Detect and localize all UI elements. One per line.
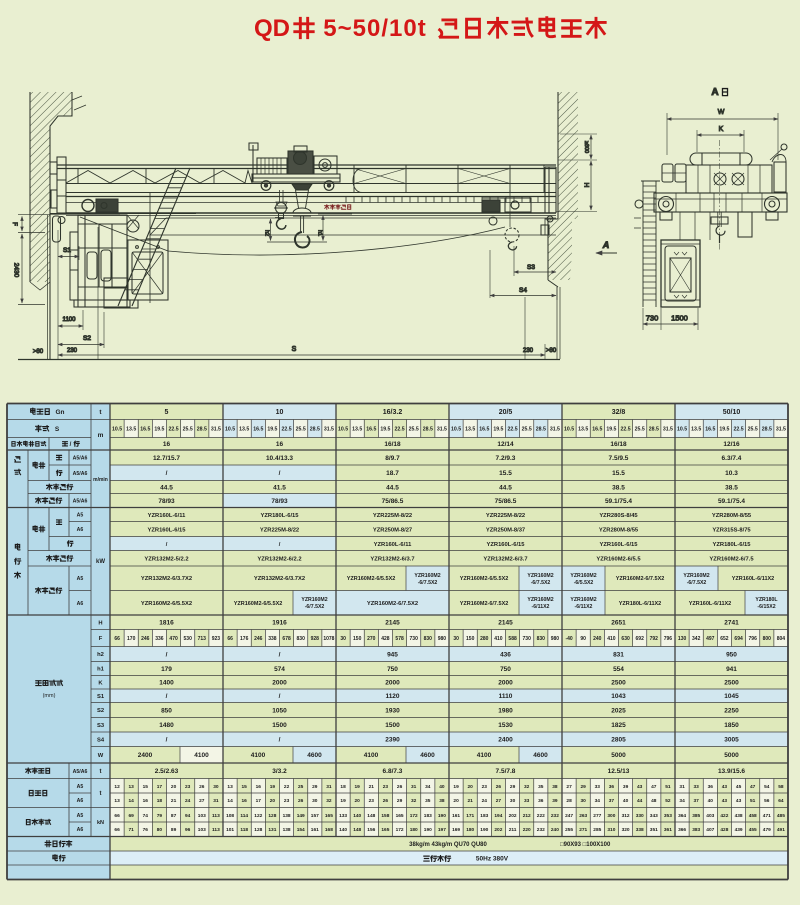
- svg-text:26: 26: [397, 784, 403, 790]
- svg-text:YZR160M2-6/5.5: YZR160M2-6/5.5: [596, 557, 641, 563]
- svg-text:25.5: 25.5: [522, 427, 532, 433]
- svg-text:37: 37: [694, 798, 700, 804]
- svg-text:730: 730: [410, 636, 419, 642]
- svg-text:32: 32: [326, 798, 332, 804]
- svg-text:138: 138: [283, 813, 291, 819]
- svg-text:W: W: [718, 109, 725, 116]
- svg-text:45: 45: [736, 784, 742, 790]
- svg-text:15: 15: [143, 784, 149, 790]
- svg-text:271: 271: [579, 827, 587, 833]
- svg-text:YZR160M2: YZR160M2: [414, 573, 440, 579]
- svg-text:255: 255: [565, 827, 573, 833]
- svg-text:361: 361: [664, 827, 672, 833]
- svg-text:4600: 4600: [533, 752, 548, 759]
- svg-text:336: 336: [155, 636, 164, 642]
- svg-text:410: 410: [607, 636, 616, 642]
- svg-text:28.5: 28.5: [423, 427, 433, 433]
- svg-text:19: 19: [453, 784, 459, 790]
- svg-text:YZR160L-6/11: YZR160L-6/11: [374, 542, 412, 548]
- svg-text:1480: 1480: [159, 722, 174, 729]
- svg-text:103: 103: [198, 827, 206, 833]
- svg-text:23: 23: [284, 798, 290, 804]
- svg-text:h2: h2: [264, 230, 270, 236]
- svg-text:52: 52: [665, 798, 671, 804]
- svg-text:22.5: 22.5: [508, 427, 518, 433]
- svg-text:80: 80: [157, 827, 163, 833]
- svg-text:43: 43: [722, 784, 728, 790]
- svg-text:197: 197: [438, 827, 446, 833]
- svg-text:140: 140: [353, 813, 361, 819]
- svg-text:945: 945: [387, 651, 398, 658]
- svg-text:31: 31: [411, 784, 417, 790]
- svg-text:24: 24: [185, 798, 191, 804]
- svg-text:28.5: 28.5: [536, 427, 546, 433]
- svg-text:YZR160M2: YZR160M2: [570, 573, 596, 579]
- svg-text:246: 246: [141, 636, 150, 642]
- svg-text:4100: 4100: [251, 752, 266, 759]
- svg-text:1400: 1400: [159, 680, 174, 687]
- svg-text:t: t: [100, 791, 102, 797]
- svg-text:342: 342: [692, 636, 701, 642]
- svg-text:W: W: [98, 753, 104, 759]
- svg-text:578: 578: [395, 636, 404, 642]
- svg-text:796: 796: [664, 636, 673, 642]
- svg-text:S4: S4: [97, 738, 105, 744]
- svg-text:364: 364: [678, 813, 686, 819]
- svg-text:850: 850: [161, 707, 172, 714]
- svg-text:750: 750: [387, 666, 398, 673]
- svg-text:10.3: 10.3: [725, 470, 738, 477]
- svg-text:YZR160L-6/11X2: YZR160L-6/11X2: [689, 601, 732, 607]
- svg-text:1916: 1916: [272, 620, 287, 627]
- svg-text:30: 30: [213, 784, 219, 790]
- svg-text:750: 750: [500, 666, 511, 673]
- svg-text:78/93: 78/93: [271, 498, 288, 505]
- svg-text:A5: A5: [77, 813, 84, 819]
- svg-text:30: 30: [581, 798, 587, 804]
- svg-text:/: /: [279, 651, 281, 658]
- svg-text:2500: 2500: [724, 680, 739, 687]
- svg-text:19.5: 19.5: [154, 427, 164, 433]
- svg-text:16.5: 16.5: [253, 427, 263, 433]
- svg-text:A: A: [711, 87, 718, 98]
- svg-text:A5/A6: A5/A6: [73, 499, 88, 505]
- svg-text:YZR160M2: YZR160M2: [570, 597, 596, 603]
- svg-text:S4: S4: [519, 287, 527, 294]
- svg-text:800: 800: [763, 636, 772, 642]
- svg-text:34: 34: [679, 798, 685, 804]
- svg-text:YZR280S-8/45: YZR280S-8/45: [599, 513, 638, 519]
- svg-text:YZR180L-6/15: YZR180L-6/15: [712, 542, 751, 548]
- svg-text:25.5: 25.5: [635, 427, 645, 433]
- svg-text:148: 148: [367, 813, 375, 819]
- svg-text:161: 161: [311, 827, 319, 833]
- svg-text:15: 15: [242, 784, 248, 790]
- svg-text:A5: A5: [77, 784, 84, 790]
- svg-text:18: 18: [340, 784, 346, 790]
- svg-text:YZR160L-6/15: YZR160L-6/15: [147, 527, 186, 533]
- svg-text:27: 27: [566, 784, 572, 790]
- svg-text:27: 27: [199, 798, 205, 804]
- svg-text:6.8/7.3: 6.8/7.3: [383, 768, 403, 775]
- svg-text:16: 16: [276, 441, 284, 448]
- svg-text:277: 277: [593, 813, 601, 819]
- svg-text:S1: S1: [97, 694, 105, 700]
- svg-text:2400: 2400: [498, 737, 513, 744]
- svg-text:2400: 2400: [138, 752, 153, 759]
- svg-text:230: 230: [523, 348, 534, 354]
- svg-text:(mm): (mm): [43, 693, 56, 699]
- svg-text:1500: 1500: [671, 314, 688, 323]
- svg-text:343: 343: [650, 813, 658, 819]
- svg-text:574: 574: [274, 666, 285, 673]
- svg-text:310: 310: [607, 827, 615, 833]
- svg-text:403: 403: [706, 813, 714, 819]
- svg-text:103: 103: [198, 813, 206, 819]
- svg-text:79: 79: [157, 813, 163, 819]
- svg-text:428: 428: [720, 827, 728, 833]
- svg-text:13.9/15.6: 13.9/15.6: [718, 768, 745, 775]
- svg-text:179: 179: [161, 666, 172, 673]
- svg-text:169: 169: [452, 827, 460, 833]
- svg-text:439: 439: [735, 827, 743, 833]
- svg-text:29: 29: [510, 784, 516, 790]
- svg-text:A6: A6: [77, 527, 84, 533]
- svg-text:≥300: ≥300: [583, 141, 589, 153]
- svg-text:-6/7.5X2: -6/7.5X2: [531, 580, 551, 586]
- svg-text:71: 71: [129, 827, 135, 833]
- svg-text:18: 18: [157, 798, 163, 804]
- svg-text:31.5: 31.5: [663, 427, 673, 433]
- svg-text:455: 455: [749, 827, 757, 833]
- svg-text:96: 96: [185, 827, 191, 833]
- svg-text:830: 830: [424, 636, 433, 642]
- svg-text:10.5: 10.5: [112, 427, 122, 433]
- svg-text:43: 43: [637, 784, 643, 790]
- svg-text:941: 941: [726, 666, 737, 673]
- svg-text:149: 149: [297, 813, 305, 819]
- svg-text:4100: 4100: [364, 752, 379, 759]
- svg-text:2651: 2651: [611, 620, 626, 627]
- svg-text:165: 165: [396, 813, 404, 819]
- svg-text:Gn: Gn: [55, 409, 64, 416]
- svg-text:170: 170: [127, 636, 136, 642]
- svg-text:14: 14: [129, 798, 135, 804]
- svg-text:50/10: 50/10: [723, 409, 741, 416]
- svg-text:36: 36: [708, 784, 714, 790]
- svg-text:438: 438: [735, 813, 743, 819]
- svg-text:YZR180L-6/11X2: YZR180L-6/11X2: [619, 601, 662, 607]
- svg-text:10.5: 10.5: [677, 427, 687, 433]
- svg-text:31.5: 31.5: [776, 427, 786, 433]
- svg-text:□90X93 □100X100: □90X93 □100X100: [560, 842, 611, 848]
- svg-text:31: 31: [679, 784, 685, 790]
- svg-text:YZR132M2-6/3.7X2: YZR132M2-6/3.7X2: [254, 576, 305, 582]
- svg-text:40: 40: [623, 798, 629, 804]
- svg-text:31.5: 31.5: [211, 427, 221, 433]
- svg-text:44.5: 44.5: [386, 484, 399, 491]
- svg-text:118: 118: [240, 827, 248, 833]
- svg-text:S3: S3: [527, 264, 535, 271]
- svg-text:2805: 2805: [611, 737, 626, 744]
- svg-text:16/18: 16/18: [610, 441, 627, 448]
- svg-text:353: 353: [664, 813, 672, 819]
- svg-text:75/86.5: 75/86.5: [382, 498, 404, 505]
- svg-text:59.1/75.4: 59.1/75.4: [718, 498, 745, 505]
- svg-text:kW: kW: [96, 559, 105, 565]
- svg-text:2000: 2000: [498, 680, 513, 687]
- svg-text:436: 436: [500, 651, 511, 658]
- svg-text:20: 20: [355, 798, 361, 804]
- svg-text:12/14: 12/14: [497, 441, 514, 448]
- svg-text:94: 94: [185, 813, 191, 819]
- svg-text:-6/7.5X2: -6/7.5X2: [418, 580, 438, 586]
- svg-text:694: 694: [734, 636, 743, 642]
- svg-text:/: /: [279, 470, 281, 477]
- svg-text:A6: A6: [77, 798, 84, 804]
- svg-text:29: 29: [581, 784, 587, 790]
- svg-text:713: 713: [198, 636, 207, 642]
- svg-text:28: 28: [566, 798, 572, 804]
- svg-text:13.5: 13.5: [352, 427, 362, 433]
- svg-text:59.1/75.4: 59.1/75.4: [605, 498, 632, 505]
- svg-text:27: 27: [496, 798, 502, 804]
- svg-text:270: 270: [367, 636, 376, 642]
- svg-text:YZR160M2: YZR160M2: [301, 597, 327, 603]
- svg-text:24: 24: [482, 798, 488, 804]
- svg-text:YZR160M2-6/7.5X2: YZR160M2-6/7.5X2: [367, 601, 418, 607]
- svg-text:39: 39: [623, 784, 629, 790]
- svg-text:168: 168: [325, 827, 333, 833]
- svg-text:h1: h1: [97, 667, 105, 673]
- svg-text:13.5: 13.5: [465, 427, 475, 433]
- svg-text:21: 21: [369, 784, 375, 790]
- svg-text:18.7: 18.7: [386, 470, 399, 477]
- svg-text:58: 58: [778, 784, 784, 790]
- svg-text:32: 32: [411, 798, 417, 804]
- svg-text:980: 980: [438, 636, 447, 642]
- svg-text:21: 21: [468, 798, 474, 804]
- svg-text:4600: 4600: [420, 752, 435, 759]
- svg-text:16/18: 16/18: [384, 441, 401, 448]
- svg-text:30: 30: [340, 636, 346, 642]
- svg-text:796: 796: [749, 636, 758, 642]
- svg-text:A: A: [602, 240, 610, 250]
- svg-text:285: 285: [593, 827, 601, 833]
- svg-text:471: 471: [763, 813, 771, 819]
- svg-text:22.5: 22.5: [169, 427, 179, 433]
- svg-text:A5/A6: A5/A6: [73, 769, 88, 775]
- svg-text:240: 240: [593, 636, 602, 642]
- svg-text:YZR160L-6/15: YZR160L-6/15: [599, 542, 638, 548]
- svg-text:/: /: [166, 737, 168, 744]
- svg-text:10.4/13.3: 10.4/13.3: [266, 455, 293, 462]
- svg-text:31.5: 31.5: [324, 427, 334, 433]
- svg-text:7.5/7.8: 7.5/7.8: [496, 768, 516, 775]
- svg-text:/: /: [279, 737, 281, 744]
- svg-text:-6/7.5X2: -6/7.5X2: [305, 604, 325, 610]
- svg-text:7.2/9.3: 7.2/9.3: [496, 455, 516, 462]
- svg-text:458: 458: [749, 813, 757, 819]
- svg-text:kN: kN: [97, 820, 104, 826]
- svg-text:407: 407: [706, 827, 714, 833]
- svg-text:1043: 1043: [611, 693, 626, 700]
- svg-text:29: 29: [312, 784, 318, 790]
- svg-text:23: 23: [482, 784, 488, 790]
- svg-text:YZR160M2-6/7.5: YZR160M2-6/7.5: [709, 557, 754, 563]
- svg-text:12/16: 12/16: [723, 441, 740, 448]
- svg-text:13: 13: [227, 784, 233, 790]
- svg-text:44.5: 44.5: [160, 484, 173, 491]
- svg-text:240: 240: [551, 827, 559, 833]
- svg-text:320: 320: [622, 827, 630, 833]
- svg-text:30: 30: [312, 798, 318, 804]
- svg-text:YZR132M2-6/2.2: YZR132M2-6/2.2: [257, 557, 301, 563]
- svg-text:16.5: 16.5: [140, 427, 150, 433]
- svg-text:165: 165: [381, 827, 389, 833]
- svg-text:16.5: 16.5: [366, 427, 376, 433]
- svg-text:-6/15X2: -6/15X2: [757, 604, 775, 610]
- svg-text:330: 330: [636, 813, 644, 819]
- svg-text:190: 190: [480, 827, 488, 833]
- svg-text:410: 410: [494, 636, 503, 642]
- svg-text:30: 30: [453, 636, 459, 642]
- svg-text:S: S: [292, 346, 297, 353]
- svg-text:38.5: 38.5: [612, 484, 625, 491]
- svg-text:8/9.7: 8/9.7: [385, 455, 400, 462]
- svg-text:300: 300: [607, 813, 615, 819]
- svg-text:31.5: 31.5: [437, 427, 447, 433]
- svg-text:280: 280: [480, 636, 489, 642]
- svg-text:1078: 1078: [323, 636, 334, 642]
- svg-text:10.5: 10.5: [451, 427, 461, 433]
- svg-text:YZR132M2-6/3.7: YZR132M2-6/3.7: [370, 557, 414, 563]
- svg-text:40: 40: [439, 784, 445, 790]
- svg-text:2741: 2741: [724, 620, 739, 627]
- svg-text:14: 14: [227, 798, 233, 804]
- svg-text:32: 32: [524, 784, 530, 790]
- svg-text:730: 730: [646, 314, 659, 323]
- svg-text:50Hz 380V: 50Hz 380V: [476, 856, 509, 863]
- svg-text:87: 87: [171, 813, 177, 819]
- svg-text:>80: >80: [33, 349, 44, 355]
- svg-text:28.5: 28.5: [197, 427, 207, 433]
- svg-text:12: 12: [114, 784, 120, 790]
- svg-text:A6: A6: [77, 601, 84, 607]
- svg-text:25.5: 25.5: [183, 427, 193, 433]
- svg-text:22.5: 22.5: [395, 427, 405, 433]
- svg-text:36: 36: [609, 784, 615, 790]
- svg-text:51: 51: [665, 784, 671, 790]
- svg-text:K: K: [719, 126, 724, 133]
- svg-text:22: 22: [284, 784, 290, 790]
- svg-text:16.5: 16.5: [705, 427, 715, 433]
- svg-text:YZR160L-6/11: YZR160L-6/11: [148, 513, 186, 519]
- svg-text:23: 23: [369, 798, 375, 804]
- svg-text:16: 16: [143, 798, 149, 804]
- svg-text:1500: 1500: [385, 722, 400, 729]
- svg-text:211: 211: [509, 827, 517, 833]
- svg-text:19.5: 19.5: [606, 427, 616, 433]
- svg-text:89: 89: [171, 827, 177, 833]
- svg-text:2000: 2000: [272, 680, 287, 687]
- svg-text:176: 176: [240, 636, 249, 642]
- svg-text:t: t: [100, 769, 102, 775]
- svg-text:16: 16: [163, 441, 171, 448]
- svg-text:2390: 2390: [385, 737, 400, 744]
- svg-text:692: 692: [636, 636, 645, 642]
- svg-text:652: 652: [720, 636, 729, 642]
- svg-text:2145: 2145: [498, 620, 513, 627]
- svg-text:101: 101: [226, 827, 234, 833]
- svg-text:338: 338: [268, 636, 277, 642]
- svg-text:190: 190: [438, 813, 446, 819]
- svg-text:928: 928: [311, 636, 320, 642]
- svg-text:428: 428: [381, 636, 390, 642]
- svg-text:20: 20: [468, 784, 474, 790]
- svg-text:78/93: 78/93: [158, 498, 175, 505]
- svg-text:23: 23: [383, 784, 389, 790]
- svg-text:830: 830: [537, 636, 546, 642]
- svg-text:A6: A6: [77, 827, 84, 833]
- svg-text:66: 66: [227, 636, 233, 642]
- svg-text:150: 150: [353, 636, 362, 642]
- svg-text:QD: QD: [254, 15, 290, 42]
- svg-text:YZR132M2-6/3.7X2: YZR132M2-6/3.7X2: [141, 576, 192, 582]
- svg-text:366: 366: [678, 827, 686, 833]
- svg-text:35: 35: [538, 784, 544, 790]
- svg-text:F: F: [99, 636, 103, 642]
- svg-text:/: /: [166, 470, 168, 477]
- svg-text:20/5: 20/5: [499, 409, 513, 416]
- svg-text:41.5: 41.5: [273, 484, 286, 491]
- svg-text:16: 16: [242, 798, 248, 804]
- svg-text:17: 17: [157, 784, 163, 790]
- svg-text:69: 69: [129, 813, 135, 819]
- svg-text:150: 150: [466, 636, 475, 642]
- svg-text:19.5: 19.5: [380, 427, 390, 433]
- svg-text:YZR250M-8/37: YZR250M-8/37: [486, 527, 525, 533]
- svg-text:1530: 1530: [498, 722, 513, 729]
- svg-text:1850: 1850: [724, 722, 739, 729]
- svg-text:28.5: 28.5: [762, 427, 772, 433]
- svg-text:202: 202: [509, 813, 517, 819]
- svg-text:2025: 2025: [611, 707, 626, 714]
- svg-text:1980: 1980: [498, 707, 513, 714]
- svg-text:263: 263: [579, 813, 587, 819]
- svg-text:44.5: 44.5: [499, 484, 512, 491]
- svg-text:190: 190: [424, 827, 432, 833]
- svg-text:10.5: 10.5: [225, 427, 235, 433]
- svg-text:25.5: 25.5: [748, 427, 758, 433]
- svg-text:66: 66: [114, 636, 120, 642]
- svg-text:2145: 2145: [385, 620, 400, 627]
- svg-text:25.5: 25.5: [296, 427, 306, 433]
- svg-text:28.5: 28.5: [649, 427, 659, 433]
- svg-text:1045: 1045: [724, 693, 739, 700]
- svg-text:36: 36: [538, 798, 544, 804]
- svg-text:133: 133: [339, 813, 347, 819]
- svg-text:48: 48: [651, 798, 657, 804]
- svg-text:194: 194: [494, 813, 502, 819]
- svg-text:20: 20: [453, 798, 459, 804]
- svg-text:A5: A5: [77, 513, 84, 519]
- svg-text:19: 19: [340, 798, 346, 804]
- svg-text:54: 54: [764, 784, 770, 790]
- svg-text:31: 31: [213, 798, 219, 804]
- svg-text:792: 792: [650, 636, 659, 642]
- svg-text:114: 114: [240, 813, 248, 819]
